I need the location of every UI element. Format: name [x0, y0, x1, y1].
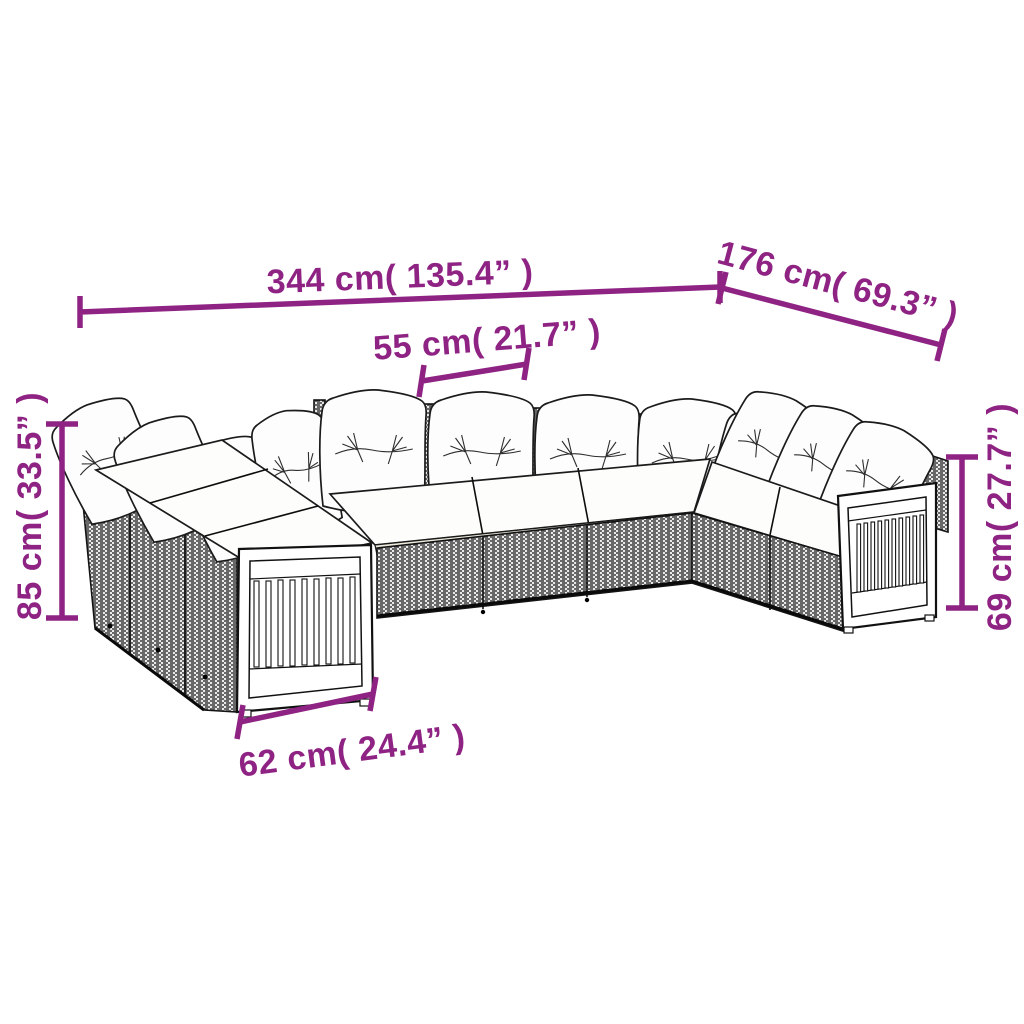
right-armrest-slat-panel — [838, 483, 936, 633]
product-dimension-diagram: 344 cm( 135.4” ) 176 cm( 69.3” ) 55 cm( … — [0, 0, 1024, 1024]
dim-label-armrest-width: 62 cm( 24.4” ) — [236, 717, 467, 784]
dim-label-arm-height: 69 cm( 27.7” ) — [981, 403, 1019, 631]
left-panel-slats — [254, 577, 355, 667]
dim-line-arm-height — [946, 457, 978, 608]
sofa-dimension-drawing: 344 cm( 135.4” ) 176 cm( 69.3” ) 55 cm( … — [0, 0, 1024, 1024]
sofa-illustration — [43, 380, 948, 717]
left-armrest-slat-panel — [237, 545, 373, 717]
dim-label-seat-width: 55 cm( 21.7” ) — [372, 312, 602, 368]
dim-label-back-height: 85 cm( 33.5” ) — [11, 392, 49, 620]
